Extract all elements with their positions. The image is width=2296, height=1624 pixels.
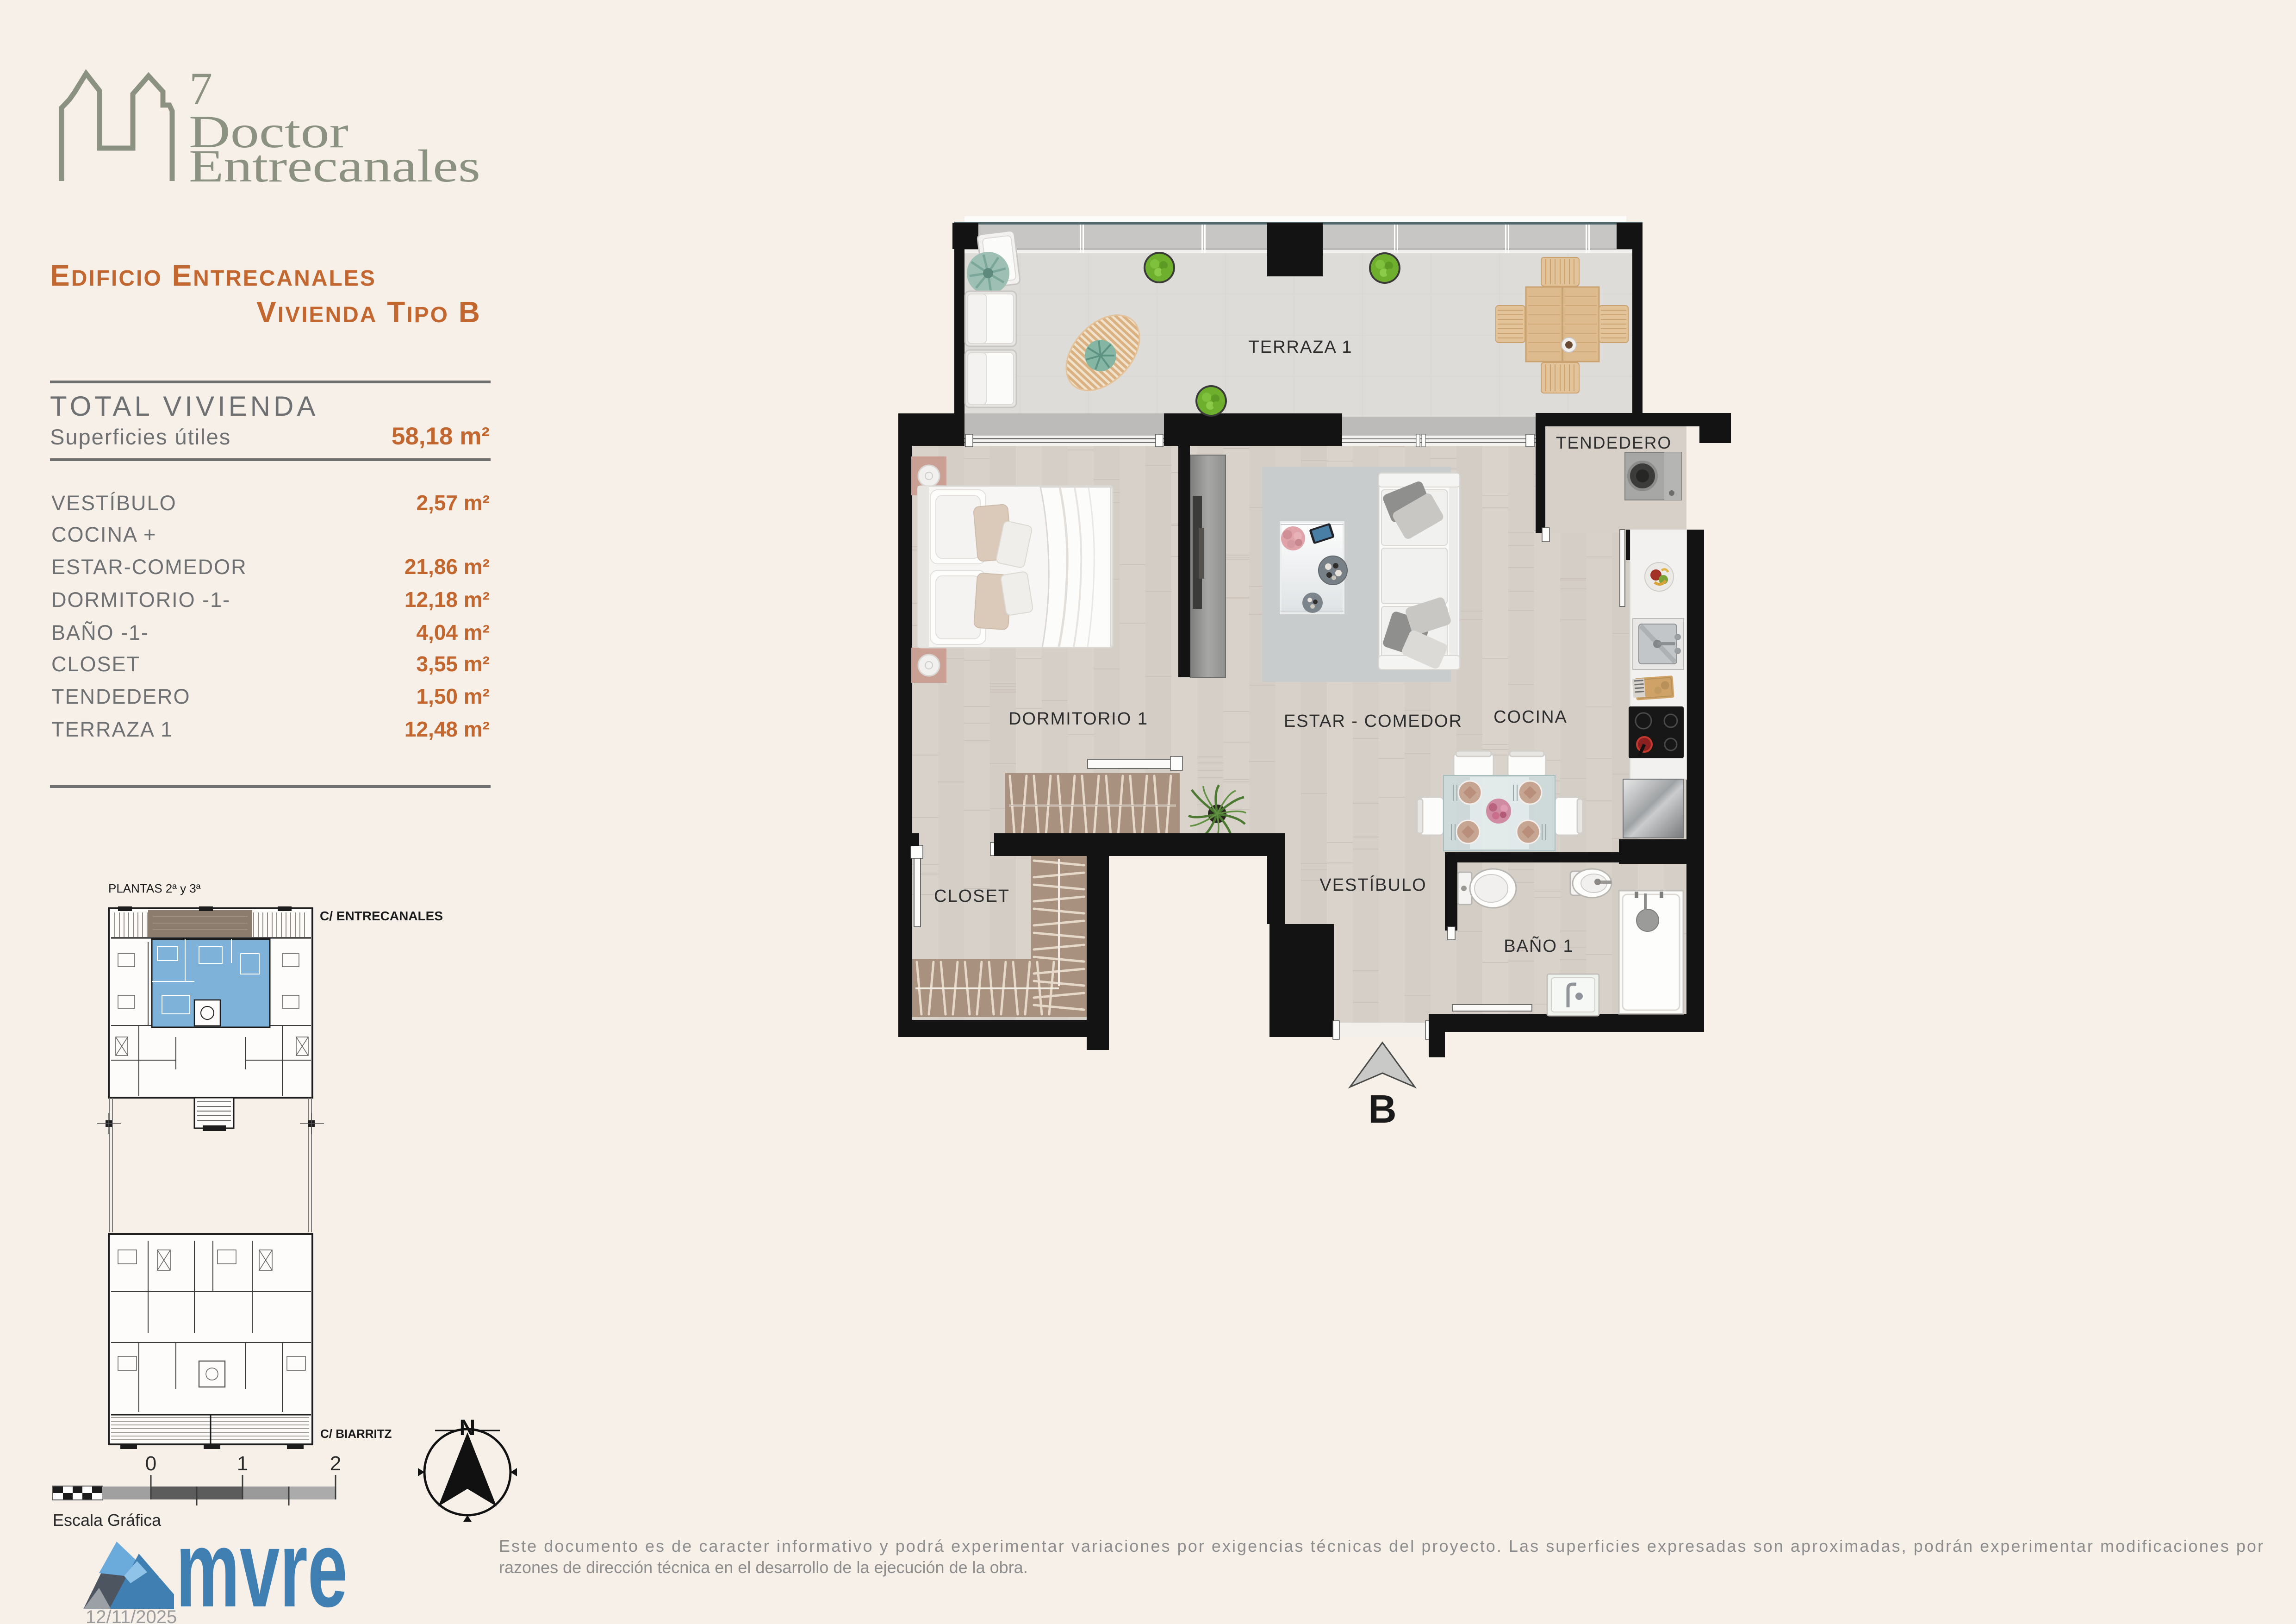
svg-text:BAÑO -1-: BAÑO -1-: [51, 621, 149, 644]
svg-text:TERRAZA 1: TERRAZA 1: [1249, 337, 1353, 357]
svg-text:COCINA +: COCINA +: [51, 523, 156, 546]
svg-text:CLOSET: CLOSET: [51, 652, 140, 676]
svg-text:mvre: mvre: [176, 1508, 348, 1624]
svg-text:Escala Gráfica: Escala Gráfica: [53, 1511, 162, 1530]
svg-text:2,57 m²: 2,57 m²: [416, 491, 490, 515]
svg-text:DORMITORIO -1-: DORMITORIO -1-: [51, 588, 230, 612]
svg-text:B: B: [1368, 1087, 1396, 1131]
svg-text:VESTÍBULO: VESTÍBULO: [1319, 875, 1426, 895]
svg-text:ESTAR - COMEDOR: ESTAR - COMEDOR: [1284, 712, 1462, 731]
svg-text:12,18 m²: 12,18 m²: [404, 587, 490, 612]
svg-text:58,18 m²: 58,18 m²: [392, 423, 490, 450]
svg-text:N: N: [460, 1416, 476, 1440]
svg-text:12,48 m²: 12,48 m²: [404, 717, 490, 741]
svg-text:VESTÍBULO: VESTÍBULO: [51, 491, 177, 515]
svg-text:COCINA: COCINA: [1493, 707, 1568, 727]
svg-text:DORMITORIO 1: DORMITORIO 1: [1008, 709, 1148, 729]
svg-text:ESTAR-COMEDOR: ESTAR-COMEDOR: [51, 555, 247, 579]
svg-text:2: 2: [330, 1452, 341, 1475]
svg-text:C/ BIARRITZ: C/ BIARRITZ: [320, 1427, 392, 1441]
svg-text:C/ ENTRECANALES: C/ ENTRECANALES: [320, 909, 443, 923]
svg-text:BAÑO 1: BAÑO 1: [1504, 936, 1574, 956]
svg-text:PLANTAS 2ª y 3ª: PLANTAS 2ª y 3ª: [108, 881, 201, 895]
svg-text:3,55 m²: 3,55 m²: [416, 652, 490, 676]
svg-text:TENDEDERO: TENDEDERO: [51, 685, 191, 708]
svg-text:12/11/2025: 12/11/2025: [86, 1607, 177, 1624]
svg-text:Entrecanales: Entrecanales: [189, 140, 480, 192]
svg-text:CLOSET: CLOSET: [934, 887, 1010, 906]
svg-text:TENDEDERO: TENDEDERO: [1556, 433, 1672, 452]
svg-text:Superficies útiles: Superficies útiles: [50, 425, 231, 449]
svg-text:Este documento es de caracter: Este documento es de caracter informativ…: [499, 1537, 2263, 1555]
svg-text:4,04 m²: 4,04 m²: [416, 620, 490, 644]
svg-text:razones de dirección técnica e: razones de dirección técnica en el desar…: [499, 1558, 1028, 1577]
svg-text:TERRAZA 1: TERRAZA 1: [51, 718, 173, 741]
svg-text:1: 1: [237, 1452, 248, 1475]
svg-text:TOTAL VIVIENDA: TOTAL VIVIENDA: [50, 391, 318, 422]
svg-text:1,50 m²: 1,50 m²: [416, 684, 490, 708]
svg-text:21,86 m²: 21,86 m²: [404, 555, 490, 579]
svg-text:0: 0: [145, 1452, 156, 1475]
